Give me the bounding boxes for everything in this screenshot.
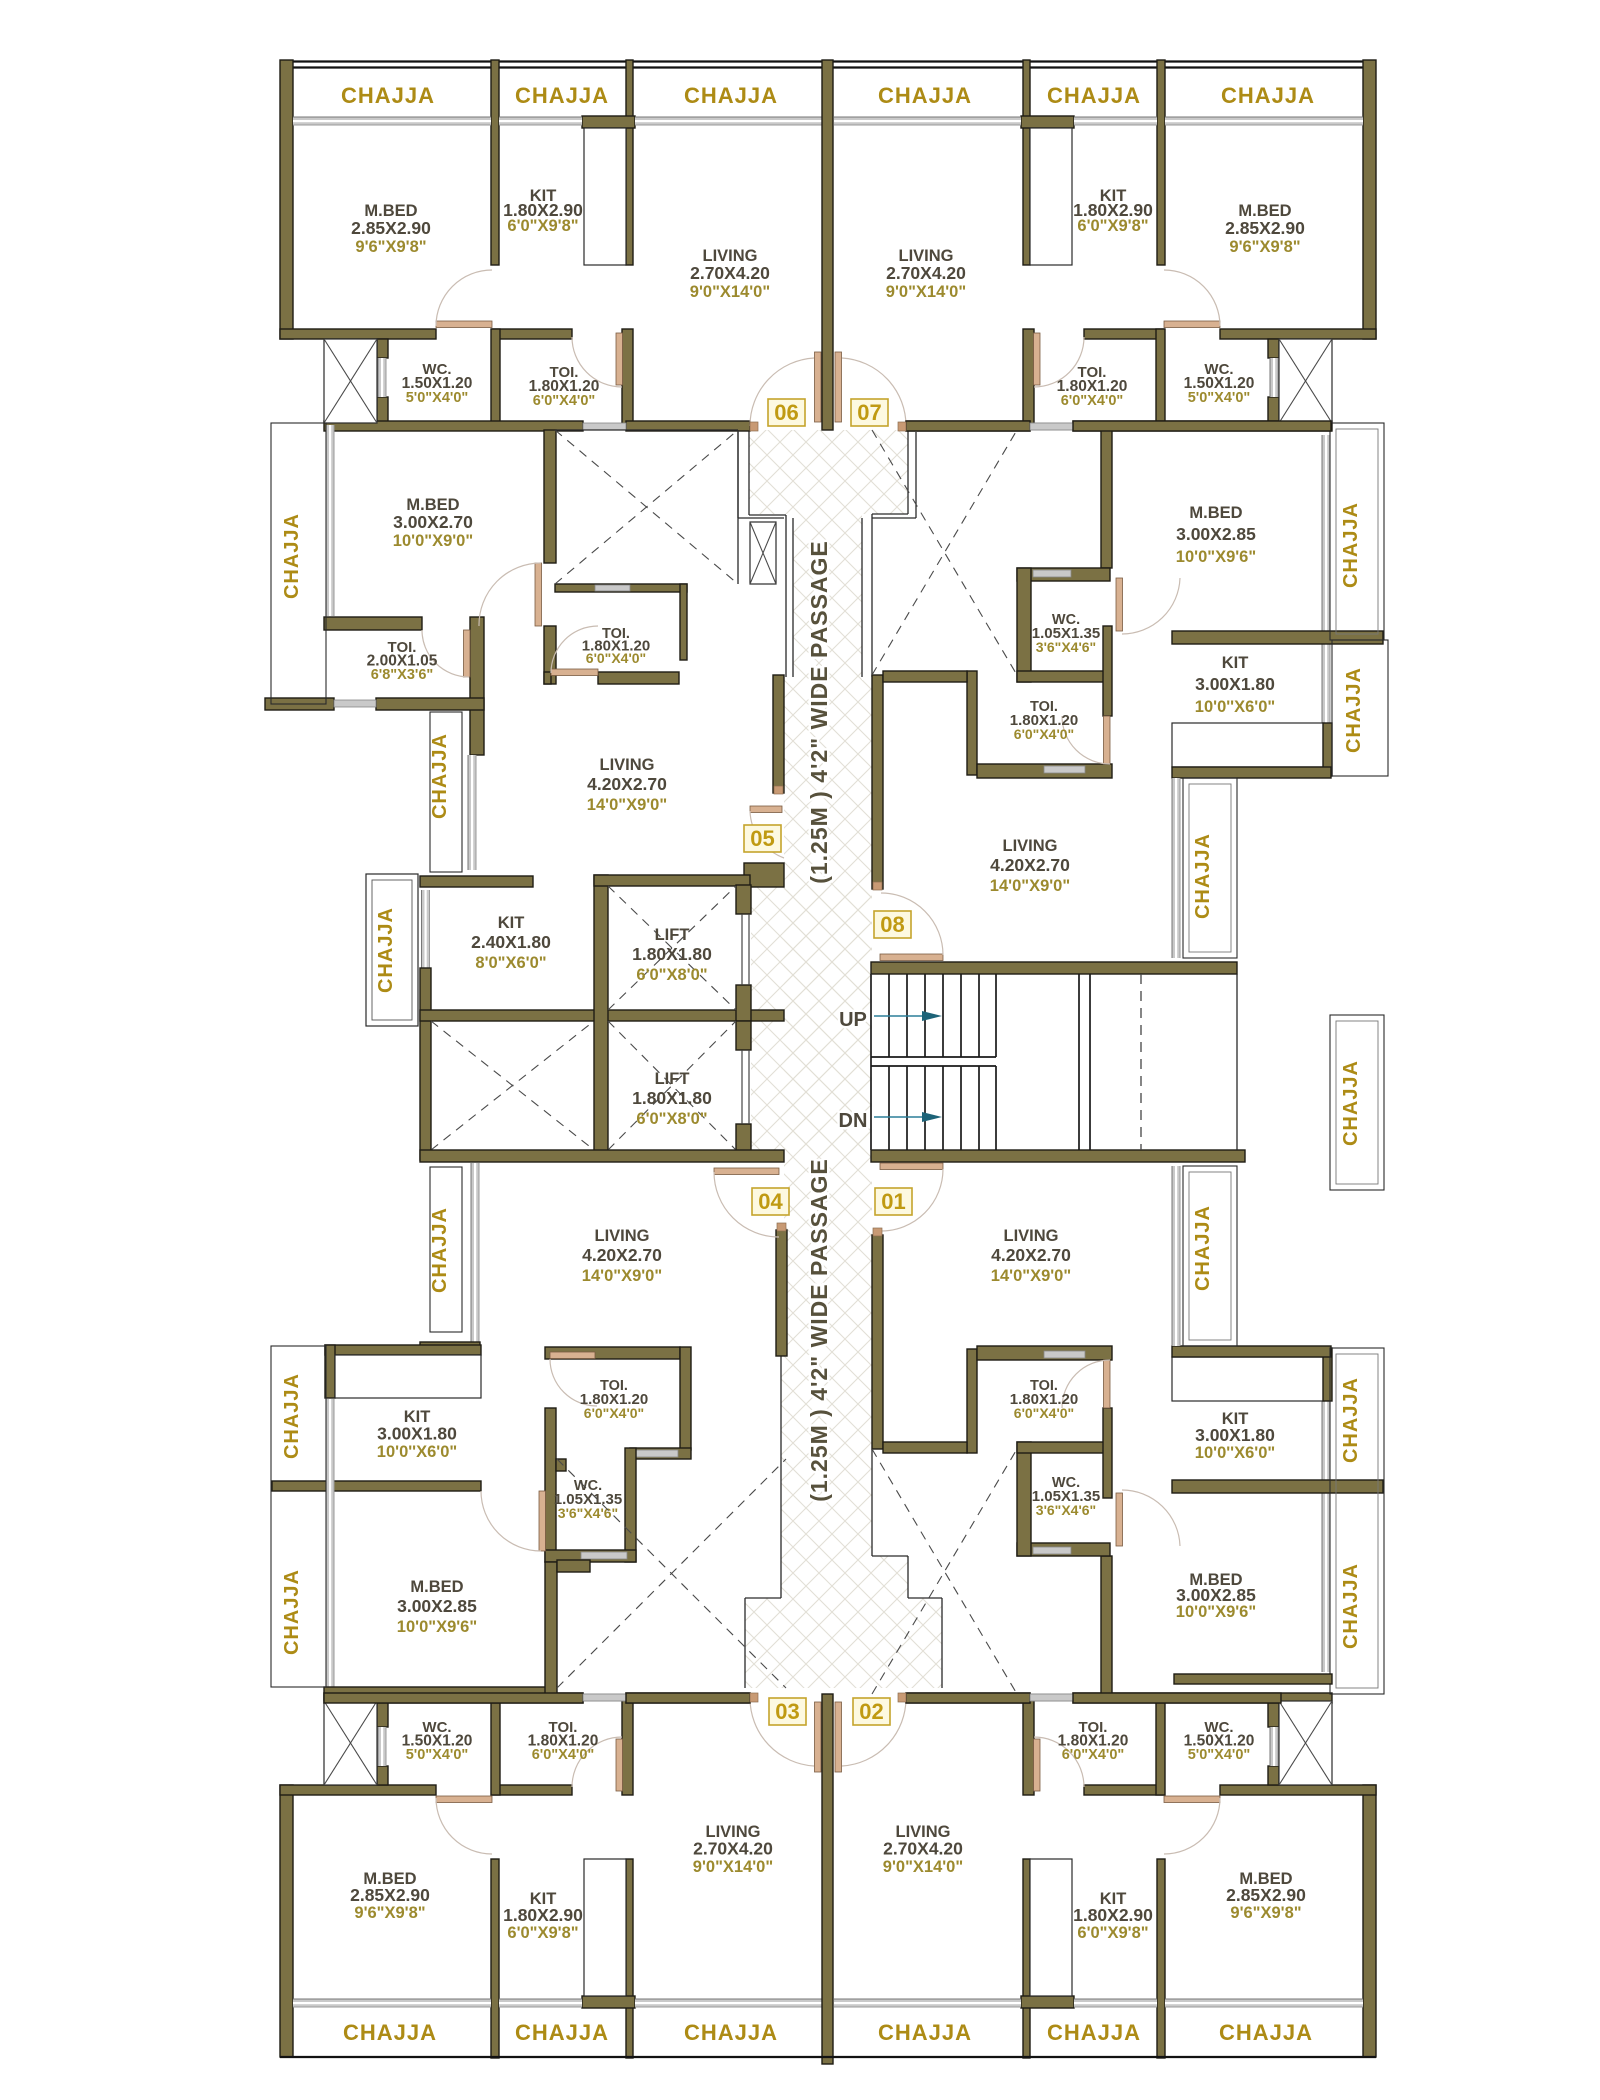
svg-text:6'8"X3'6": 6'8"X3'6" <box>371 667 434 683</box>
svg-text:CHAJJA: CHAJJA <box>878 83 972 108</box>
svg-text:CHAJJA: CHAJJA <box>1340 1060 1362 1146</box>
svg-text:9'6"X9'8": 9'6"X9'8" <box>354 1904 425 1922</box>
svg-text:2.85X2.90: 2.85X2.90 <box>1225 218 1305 238</box>
svg-text:CHAJJA: CHAJJA <box>341 83 435 108</box>
svg-text:CHAJJA: CHAJJA <box>684 83 778 108</box>
svg-text:CHAJJA: CHAJJA <box>1340 1377 1362 1463</box>
svg-text:3.00X2.85: 3.00X2.85 <box>1176 524 1256 544</box>
svg-text:9'6"X9'8": 9'6"X9'8" <box>1230 1904 1301 1922</box>
svg-text:2.70X4.20: 2.70X4.20 <box>883 1839 963 1859</box>
svg-text:5'0"X4'0": 5'0"X4'0" <box>1188 1747 1251 1763</box>
svg-text:CHAJJA: CHAJJA <box>281 513 303 599</box>
svg-text:CHAJJA: CHAJJA <box>1192 1205 1214 1291</box>
svg-text:UP: UP <box>839 1009 867 1031</box>
svg-text:6'0"X4'0": 6'0"X4'0" <box>1014 726 1074 742</box>
svg-text:CHAJJA: CHAJJA <box>1340 1563 1362 1649</box>
svg-text:LIFT: LIFT <box>655 1070 690 1088</box>
svg-text:M.BED: M.BED <box>410 1578 463 1596</box>
svg-text:01: 01 <box>881 1189 905 1214</box>
svg-text:3'6"X4'6": 3'6"X4'6" <box>558 1505 618 1521</box>
svg-text:1.80X2.90: 1.80X2.90 <box>1073 1905 1153 1925</box>
svg-text:3'6"X4'6": 3'6"X4'6" <box>1036 639 1096 655</box>
svg-text:9'0"X14'0": 9'0"X14'0" <box>883 1858 963 1876</box>
svg-text:06: 06 <box>774 400 798 425</box>
svg-text:1.80X1.80: 1.80X1.80 <box>632 944 712 964</box>
svg-text:4.20X2.70: 4.20X2.70 <box>990 855 1070 875</box>
svg-text:(1.25M ) 4'2" WIDE PASSAGE: (1.25M ) 4'2" WIDE PASSAGE <box>806 1158 832 1502</box>
svg-text:LIVING: LIVING <box>1003 1227 1058 1245</box>
svg-text:6'0"X9'8": 6'0"X9'8" <box>507 217 578 235</box>
svg-text:10'0''X6'0": 10'0''X6'0" <box>1195 698 1275 716</box>
svg-text:6'0"X4'0": 6'0"X4'0" <box>1061 393 1124 409</box>
svg-text:10'0"X9'0": 10'0"X9'0" <box>393 532 473 550</box>
svg-text:4.20X2.70: 4.20X2.70 <box>587 774 667 794</box>
svg-text:4.20X2.70: 4.20X2.70 <box>991 1245 1071 1265</box>
svg-text:2.70X4.20: 2.70X4.20 <box>886 263 966 283</box>
svg-text:CHAJJA: CHAJJA <box>878 2020 972 2045</box>
svg-text:LIVING: LIVING <box>1002 837 1057 855</box>
svg-text:10'0"X9'6": 10'0"X9'6" <box>1176 548 1256 566</box>
svg-text:(1.25M ) 4'2" WIDE PASSAGE: (1.25M ) 4'2" WIDE PASSAGE <box>806 540 832 884</box>
svg-text:6'0"X8'0": 6'0"X8'0" <box>636 1110 707 1128</box>
svg-text:LIFT: LIFT <box>655 926 690 944</box>
svg-text:CHAJJA: CHAJJA <box>429 733 451 819</box>
svg-text:10'0''X6'0": 10'0''X6'0" <box>377 1443 457 1461</box>
svg-text:M.BED: M.BED <box>1189 504 1242 522</box>
svg-text:2.40X1.80: 2.40X1.80 <box>471 932 551 952</box>
svg-text:CHAJJA: CHAJJA <box>1340 502 1362 588</box>
svg-text:CHAJJA: CHAJJA <box>1047 83 1141 108</box>
svg-text:6'0"X4'0": 6'0"X4'0" <box>1062 1747 1125 1763</box>
svg-text:CHAJJA: CHAJJA <box>515 83 609 108</box>
svg-text:5'0"X4'0": 5'0"X4'0" <box>406 390 469 406</box>
svg-text:1.80X1.80: 1.80X1.80 <box>632 1088 712 1108</box>
svg-text:6'0"X9'8": 6'0"X9'8" <box>1077 1924 1148 1942</box>
svg-text:08: 08 <box>880 912 904 937</box>
svg-text:6'0"X9'8": 6'0"X9'8" <box>1077 217 1148 235</box>
svg-text:3.00X2.70: 3.00X2.70 <box>393 512 473 532</box>
svg-text:14'0"X9'0": 14'0"X9'0" <box>991 1267 1071 1285</box>
svg-text:1.80X2.90: 1.80X2.90 <box>503 1905 583 1925</box>
svg-text:6'0"X4'0": 6'0"X4'0" <box>532 1747 595 1763</box>
svg-text:8'0"X6'0": 8'0"X6'0" <box>475 954 546 972</box>
svg-text:CHAJJA: CHAJJA <box>515 2020 609 2045</box>
svg-text:9'0"X14'0": 9'0"X14'0" <box>886 283 966 301</box>
svg-text:4.20X2.70: 4.20X2.70 <box>582 1245 662 1265</box>
svg-text:CHAJJA: CHAJJA <box>684 2020 778 2045</box>
svg-text:CHAJJA: CHAJJA <box>429 1207 451 1293</box>
svg-text:14'0"X9'0": 14'0"X9'0" <box>587 796 667 814</box>
svg-text:03: 03 <box>775 1699 799 1724</box>
svg-text:6'0"X4'0": 6'0"X4'0" <box>533 393 596 409</box>
svg-text:CHAJJA: CHAJJA <box>1047 2020 1141 2045</box>
svg-text:CHAJJA: CHAJJA <box>343 2020 437 2045</box>
svg-text:CHAJJA: CHAJJA <box>1219 2020 1313 2045</box>
svg-text:5'0"X4'0": 5'0"X4'0" <box>1188 390 1251 406</box>
svg-text:2.85X2.90: 2.85X2.90 <box>351 218 431 238</box>
svg-text:9'0"X14'0": 9'0"X14'0" <box>690 283 770 301</box>
svg-text:6'0"X9'8": 6'0"X9'8" <box>507 1924 578 1942</box>
svg-text:LIVING: LIVING <box>599 756 654 774</box>
svg-text:2.85X2.90: 2.85X2.90 <box>350 1885 430 1905</box>
svg-text:CHAJJA: CHAJJA <box>1192 833 1214 919</box>
svg-text:10'0"X9'6": 10'0"X9'6" <box>397 1618 477 1636</box>
svg-text:10'0''X6'0": 10'0''X6'0" <box>1195 1444 1275 1462</box>
svg-text:10'0"X9'6": 10'0"X9'6" <box>1176 1603 1256 1621</box>
svg-text:3.00X1.80: 3.00X1.80 <box>1195 1425 1275 1445</box>
svg-text:07: 07 <box>857 400 881 425</box>
svg-text:6'0"X4'0": 6'0"X4'0" <box>1014 1405 1074 1421</box>
svg-text:9'6"X9'8": 9'6"X9'8" <box>1229 238 1300 256</box>
svg-text:DN: DN <box>839 1110 868 1132</box>
svg-text:14'0"X9'0": 14'0"X9'0" <box>582 1267 662 1285</box>
svg-text:05: 05 <box>750 826 774 851</box>
svg-text:6'0"X4'0": 6'0"X4'0" <box>584 1405 644 1421</box>
svg-text:KIT: KIT <box>498 914 525 932</box>
svg-text:2.70X4.20: 2.70X4.20 <box>693 1839 773 1859</box>
svg-text:3.00X2.85: 3.00X2.85 <box>1176 1585 1256 1605</box>
svg-text:KIT: KIT <box>1222 654 1249 672</box>
svg-text:CHAJJA: CHAJJA <box>281 1569 303 1655</box>
svg-text:CHAJJA: CHAJJA <box>375 907 397 993</box>
svg-text:2.85X2.90: 2.85X2.90 <box>1226 1885 1306 1905</box>
svg-text:14'0"X9'0": 14'0"X9'0" <box>990 877 1070 895</box>
svg-text:04: 04 <box>758 1189 783 1214</box>
svg-text:02: 02 <box>859 1699 883 1724</box>
svg-text:3.00X1.80: 3.00X1.80 <box>1195 674 1275 694</box>
svg-text:3.00X2.85: 3.00X2.85 <box>397 1596 477 1616</box>
svg-text:6'0"X4'0": 6'0"X4'0" <box>586 650 646 666</box>
svg-text:6'0"X8'0": 6'0"X8'0" <box>636 966 707 984</box>
svg-text:3'6"X4'6": 3'6"X4'6" <box>1036 1502 1096 1518</box>
svg-text:CHAJJA: CHAJJA <box>281 1373 303 1459</box>
svg-text:9'0"X14'0": 9'0"X14'0" <box>693 1858 773 1876</box>
svg-text:LIVING: LIVING <box>594 1227 649 1245</box>
svg-text:3.00X1.80: 3.00X1.80 <box>377 1424 457 1444</box>
svg-text:CHAJJA: CHAJJA <box>1221 83 1315 108</box>
svg-text:CHAJJA: CHAJJA <box>1343 667 1365 753</box>
svg-text:9'6"X9'8": 9'6"X9'8" <box>355 238 426 256</box>
svg-text:5'0"X4'0": 5'0"X4'0" <box>406 1747 469 1763</box>
svg-text:2.70X4.20: 2.70X4.20 <box>690 263 770 283</box>
